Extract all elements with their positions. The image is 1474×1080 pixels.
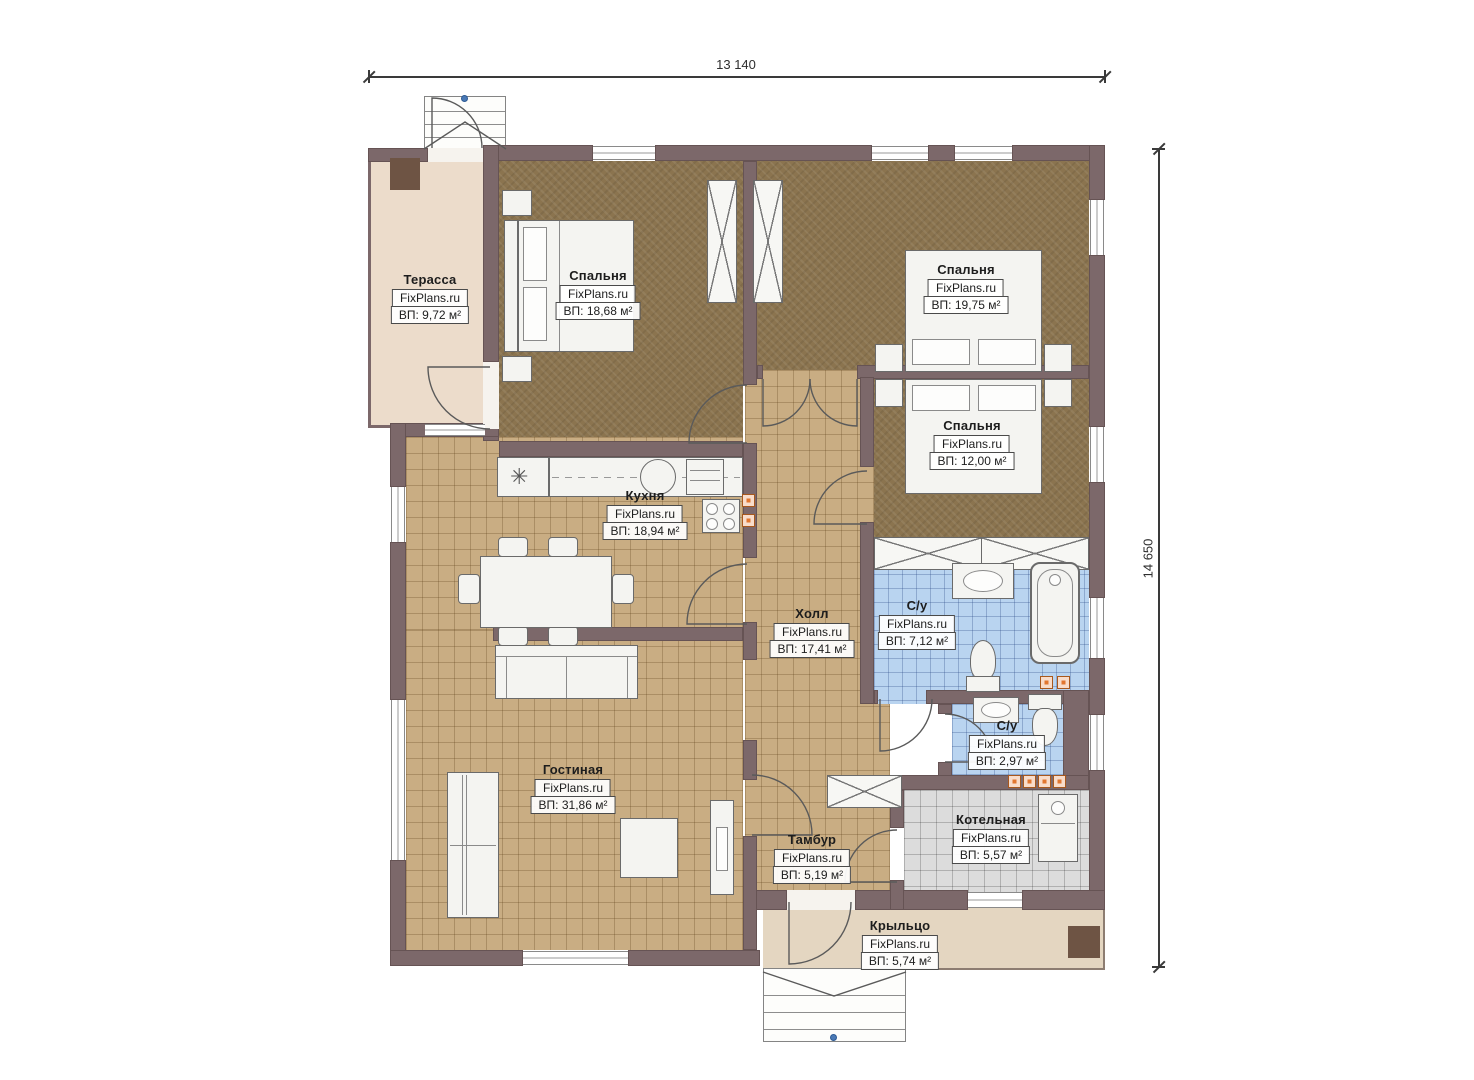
porch-pier [1068,926,1100,958]
vent-star-icon: ✳ [510,466,528,488]
wardrobe-icon [707,180,737,303]
socket-icon [742,494,755,507]
brand-label: FixPlans.ru [928,279,1004,297]
door-opening [483,362,499,429]
room-area: ВП: 5,57 м² [952,846,1030,864]
pillow-icon [912,385,970,411]
wall-segment [499,441,743,457]
room-area: ВП: 5,74 м² [861,952,939,970]
brand-label: FixPlans.ru [392,289,468,307]
room-area: ВП: 7,12 м² [878,632,956,650]
wall-segment [390,542,406,700]
burner-icon [723,503,735,515]
wall-segment [1089,145,1105,200]
nightstand-icon [875,344,903,372]
wall-segment [860,522,874,704]
brand-label: FixPlans.ru [953,829,1029,847]
chair-icon [498,626,528,646]
wall-segment [1022,890,1105,910]
boiler-line [1041,823,1075,824]
step-line [425,111,505,112]
wall-segment [743,740,757,780]
wall-segment [390,950,523,966]
oven-icon [686,459,724,495]
pillow-icon [523,227,547,281]
door-opening [428,148,483,162]
brand-label: FixPlans.ru [535,779,611,797]
socket-icon [1023,775,1036,788]
wall-segment [1089,658,1105,715]
room-area: ВП: 31,86 м² [531,796,616,814]
window [593,146,655,160]
cabinet-icon [447,772,499,918]
basin-icon [981,702,1011,718]
bathtub-icon [1030,562,1080,664]
floor-plan: 13 140 14 650 [0,0,1474,1080]
wall-segment [860,377,874,467]
cabinet-line [450,845,496,846]
room-area: ВП: 18,94 м² [603,522,688,540]
wall-segment [1089,255,1105,427]
drain-icon [1049,574,1061,586]
wall-segment [1063,690,1089,780]
entrance-door-opening [787,890,855,910]
room-label-living: Гостиная FixPlans.ru ВП: 31,86 м² [531,762,616,814]
room-label-bedroom1: Спальня FixPlans.ru ВП: 18,68 м² [556,268,641,320]
room-name: Спальня [556,268,641,283]
room-label-kitchen: Кухня FixPlans.ru ВП: 18,94 м² [603,488,688,540]
burner-icon [706,503,718,515]
door-point-dot [461,95,468,102]
wall-segment [493,627,743,641]
room-label-bedroom2: Спальня FixPlans.ru ВП: 19,75 м² [924,262,1009,314]
room-label-terrace: Терасса FixPlans.ru ВП: 9,72 м² [391,272,469,324]
window [523,951,628,965]
wall-segment [890,880,904,910]
sofa-arm-line [506,656,507,698]
room-name: Спальня [924,262,1009,277]
socket-icon [1040,676,1053,689]
closet-icon [827,775,902,808]
dimension-line [1158,148,1160,968]
boiler-dial-icon [1051,801,1065,815]
nightstand-icon [502,356,532,382]
dimension-line [368,76,1105,78]
window [1090,427,1104,482]
room-name: Котельная [952,812,1030,827]
room-name: Кухня [603,488,688,503]
pillow-icon [912,339,970,365]
chair-icon [548,626,578,646]
wall-segment [743,836,757,950]
room-area: ВП: 2,97 м² [968,752,1046,770]
window [968,892,1022,908]
cooktop-icon [702,499,740,533]
sofa-icon [495,645,638,699]
dimension-height-label: 14 650 [1140,539,1155,579]
nightstand-icon [1044,344,1072,372]
step-line [764,1029,905,1030]
wall-segment [1089,482,1105,598]
chair-icon [612,574,634,604]
room-name: Гостиная [531,762,616,777]
room-label-bath2: С/у FixPlans.ru ВП: 2,97 м² [968,718,1046,770]
step-line [764,995,905,996]
coffee-table-icon [620,818,678,878]
brand-label: FixPlans.ru [862,935,938,953]
room-area: ВП: 9,72 м² [391,306,469,324]
socket-icon [742,514,755,527]
room-label-boiler: Котельная FixPlans.ru ВП: 5,57 м² [952,812,1030,864]
room-area: ВП: 18,68 м² [556,302,641,320]
burner-icon [723,518,735,530]
chair-icon [548,537,578,557]
window [1090,598,1104,658]
window [1090,715,1104,770]
wardrobe-icon [753,180,783,303]
brand-label: FixPlans.ru [607,505,683,523]
dimension-width-label: 13 140 [716,57,756,72]
wall-segment [874,690,878,704]
oven-line [690,470,720,471]
nightstand-icon [1044,379,1072,407]
basin-icon [963,570,1003,592]
wall-segment [1089,770,1105,910]
tv-icon [716,827,728,871]
burner-icon [706,518,718,530]
room-label-porch: Крыльцо FixPlans.ru ВП: 5,74 м² [861,918,939,970]
brand-label: FixPlans.ru [774,849,850,867]
step-line [425,137,505,138]
chair-icon [498,537,528,557]
brand-label: FixPlans.ru [774,623,850,641]
window [955,146,1012,160]
room-name: Терасса [391,272,469,287]
room-name: С/у [878,598,956,613]
wall-segment [928,145,955,161]
socket-icon [1053,775,1066,788]
oven-line [690,480,720,481]
room-name: Крыльцо [861,918,939,933]
socket-icon [1057,676,1070,689]
room-area: ВП: 17,41 м² [770,640,855,658]
socket-icon [1038,775,1051,788]
wall-segment [628,950,760,966]
bathroom-sink-icon [952,563,1014,599]
window [425,424,485,436]
brand-label: FixPlans.ru [560,285,636,303]
terrace-pier [390,158,420,190]
room-label-tambur: Тамбур FixPlans.ru ВП: 5,19 м² [773,832,851,884]
brand-label: FixPlans.ru [969,735,1045,753]
room-area: ВП: 19,75 м² [924,296,1009,314]
window [391,700,405,860]
entry-steps-bottom [763,968,906,1042]
chair-icon [458,574,480,604]
wall-segment [743,622,757,660]
nightstand-icon [502,190,532,216]
sofa-arm-line [627,656,628,698]
wall-segment [938,704,952,714]
bed-headboard-icon [504,220,518,352]
pillow-icon [978,385,1036,411]
terrace-edge [368,148,371,428]
room-label-bedroom3: Спальня FixPlans.ru ВП: 12,00 м² [930,418,1015,470]
wall-segment [483,145,499,362]
toilet-tank-icon [966,676,1000,692]
boiler-icon [1038,794,1078,862]
nightstand-icon [875,379,903,407]
wall-segment [390,423,406,487]
toilet-bowl-icon [970,640,996,680]
pillow-icon [523,287,547,341]
wall-segment [483,145,593,161]
dining-table-icon [480,556,612,628]
room-label-bath1: С/у FixPlans.ru ВП: 7,12 м² [878,598,956,650]
entry-steps-top [424,96,506,150]
wall-segment [855,890,968,910]
step-line [425,124,505,125]
room-name: Холл [770,606,855,621]
room-name: С/у [968,718,1046,733]
room-area: ВП: 5,19 м² [773,866,851,884]
tv-stand-icon [710,800,734,895]
wall-segment [655,145,872,161]
brand-label: FixPlans.ru [879,615,955,633]
sofa-seat-line [566,656,567,698]
room-area: ВП: 12,00 м² [930,452,1015,470]
room-name: Спальня [930,418,1015,433]
brand-label: FixPlans.ru [934,435,1010,453]
window [1090,200,1104,255]
window [872,146,928,160]
door-point-dot [830,1034,837,1041]
step-line [764,1012,905,1013]
room-name: Тамбур [773,832,851,847]
wall-segment [757,365,763,379]
window [391,487,405,542]
socket-icon [1008,775,1021,788]
pillow-icon [978,339,1036,365]
room-label-hall: Холл FixPlans.ru ВП: 17,41 м² [770,606,855,658]
